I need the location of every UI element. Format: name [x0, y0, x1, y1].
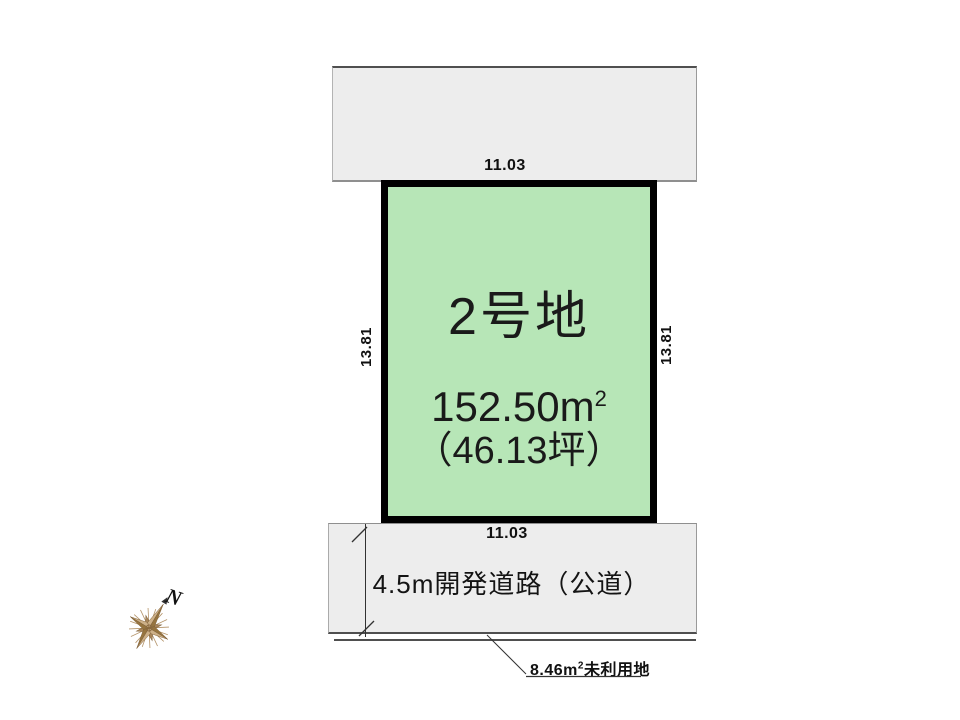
dimension-right: 13.81 — [658, 305, 676, 385]
dimension-bottom: 11.03 — [462, 525, 552, 545]
lot-area-unit: m — [560, 383, 595, 430]
dimension-left: 13.81 — [358, 307, 376, 387]
road-edge-second-line — [334, 639, 696, 641]
unused-land-label: 8.46m2未利用地 — [530, 656, 650, 680]
unused-land-text: 未利用地 — [584, 662, 650, 679]
road-label: 4.5m開発道路（公道） — [330, 564, 693, 601]
unused-land-unit: m — [563, 662, 578, 679]
lot-layout-diagram: 11.03 2号地 152.50m2 （46.13坪） 13.81 13.81 … — [0, 0, 960, 720]
dimension-top: 11.03 — [460, 157, 550, 177]
lot-area-tsubo: （46.13坪） — [388, 429, 650, 473]
lot-area: 152.50m2 — [388, 383, 650, 431]
lot-area-unit-exp: 2 — [595, 386, 607, 411]
compass-rose — [110, 584, 200, 674]
unused-land-value: 8.46 — [530, 662, 563, 679]
subject-lot: 2号地 152.50m2 （46.13坪） — [381, 180, 657, 523]
lot-area-value: 152.50 — [431, 383, 559, 430]
lot-name: 2号地 — [388, 287, 650, 347]
